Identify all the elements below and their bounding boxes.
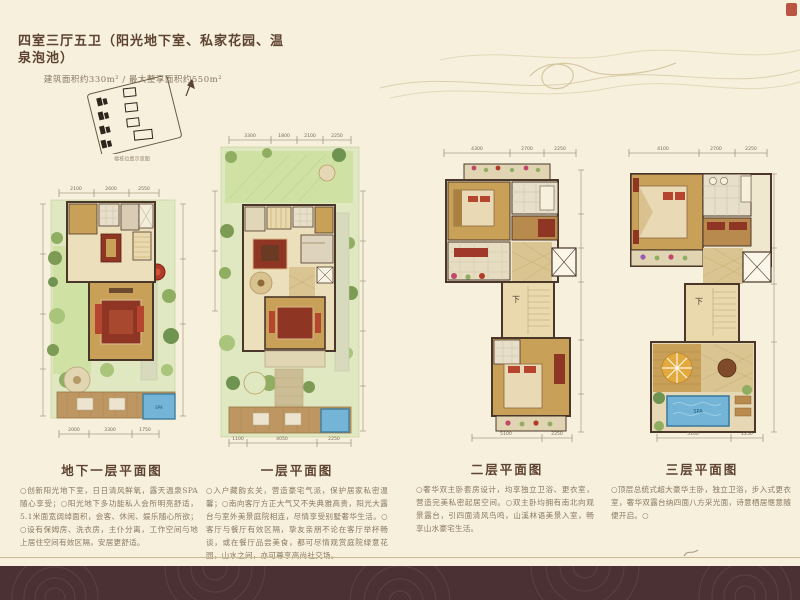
- svg-text:4100: 4100: [657, 146, 669, 152]
- maid-room: [69, 204, 97, 234]
- stairs: [267, 207, 291, 229]
- svg-text:5100: 5100: [500, 431, 512, 437]
- siteplan-figure: [74, 76, 204, 154]
- bathroom: [293, 207, 313, 227]
- plan-second-floor-figure: 4300 2700 2250: [438, 144, 584, 444]
- plan-desc-second: ○奢华双主卧套房设计，均享独立卫浴、更衣室，营造完美私密起居空间。○双主卧均拥有…: [416, 483, 594, 535]
- garden-motif: [319, 165, 335, 181]
- spa-pool-label: SPA: [693, 409, 703, 415]
- laundry-room: [121, 204, 139, 230]
- plan-title-first: 一层平面图: [207, 460, 387, 479]
- svg-text:2250: 2250: [745, 146, 757, 152]
- bathroom-south: [494, 340, 520, 364]
- footer-flourish-icon: [682, 547, 700, 559]
- svg-text:4300: 4300: [471, 146, 483, 152]
- footer-divider-line: [0, 557, 800, 558]
- building-footprints-solid: [90, 96, 118, 148]
- dresser: [554, 354, 565, 384]
- plan-first-floor-figure: 3300 1800 2100 2250: [209, 131, 371, 449]
- corner-logo-mark: [786, 3, 797, 16]
- dining-table: [261, 245, 279, 261]
- bathtub: [540, 186, 554, 210]
- siteplan: 楼栋位置示意图: [74, 76, 204, 172]
- stairs: [133, 232, 151, 260]
- stairs: [685, 284, 739, 342]
- svg-text:1100: 1100: [232, 436, 244, 442]
- contour-waves-decoration: [380, 30, 800, 108]
- garden-feature: [244, 372, 266, 394]
- plan-title-second: 二层平面图: [418, 459, 596, 478]
- plan-basement-figure: 2100 2600 2550: [37, 184, 187, 442]
- plan-title-basement: 地下一层平面图: [29, 460, 195, 479]
- svg-text:2100: 2100: [70, 186, 82, 192]
- plan-desc-third: ○顶层总统式超大豪华主卧，独立卫浴，步入式更衣室，奢华双露台纳四面八方采光面，诗…: [611, 483, 791, 522]
- plan-desc-basement: ○创新阳光地下室，日日清风鲜氧，露天温泉SPA随心享受；○阳光地下多功能私人会所…: [20, 484, 198, 549]
- plan-first-floor: 3300 1800 2100 2250: [209, 131, 371, 453]
- entry-foyer: [245, 207, 265, 231]
- siteplan-caption: 楼栋位置示意图: [83, 155, 182, 163]
- svg-text:3300: 3300: [104, 427, 116, 433]
- north-arrow-icon: [186, 80, 194, 96]
- page-title: 四室三厅五卫（阳光地下室、私家花园、温泉泡池）: [18, 34, 288, 68]
- svg-text:2100: 2100: [304, 133, 316, 139]
- svg-text:SPA: SPA: [155, 405, 163, 410]
- bathroom: [99, 204, 119, 226]
- svg-text:1750: 1750: [139, 427, 151, 433]
- svg-text:2600: 2600: [105, 186, 117, 192]
- kitchen: [301, 235, 333, 263]
- sofa: [95, 304, 102, 334]
- pool: [321, 409, 349, 432]
- sofa: [269, 311, 275, 333]
- tv-cabinet: [109, 288, 133, 293]
- palm-plant: [653, 392, 665, 404]
- south-terrace: [265, 351, 325, 367]
- bathtub: [741, 176, 751, 202]
- sitting-terrace: [448, 242, 510, 280]
- study-room: [315, 207, 333, 233]
- svg-text:2000: 2000: [68, 427, 80, 433]
- svg-text:2250: 2250: [741, 431, 753, 437]
- plan-second-floor: 4300 2700 2250: [438, 144, 584, 448]
- lounge-chair: [77, 398, 93, 410]
- svg-text:2250: 2250: [328, 436, 340, 442]
- living-carpet: [277, 307, 313, 339]
- svg-text:4050: 4050: [276, 436, 288, 442]
- garden-path: [335, 213, 349, 371]
- svg-text:3300: 3300: [244, 133, 256, 139]
- plan-desc-first: ○入户藏韵玄关，营造豪宅气派，保护居家私密温馨；○南向客厅方正大气又不失典雅高贵…: [206, 484, 388, 562]
- lounge-chair: [253, 413, 269, 425]
- svg-text:1800: 1800: [278, 133, 290, 139]
- stair-down-label: 下: [512, 295, 520, 304]
- svg-text:2700: 2700: [521, 146, 533, 152]
- plan-basement: 2100 2600 2550: [37, 184, 187, 446]
- building-footprints-outline: [118, 85, 154, 144]
- garden-steps: [275, 369, 303, 413]
- round-table: [718, 359, 736, 377]
- plan-third-floor-figure: 4100 2700 2250: [623, 144, 778, 444]
- plan-third-floor: 4100 2700 2250: [623, 144, 778, 448]
- stair-down-label: 下: [695, 297, 703, 306]
- footer-swirl-band: [0, 566, 800, 600]
- svg-text:2700: 2700: [710, 146, 722, 152]
- lounger: [735, 396, 751, 404]
- svg-text:2250: 2250: [551, 431, 563, 437]
- sofa: [454, 248, 488, 257]
- svg-text:2250: 2250: [554, 146, 566, 152]
- svg-text:2550: 2550: [138, 186, 150, 192]
- svg-text:2250: 2250: [331, 133, 343, 139]
- svg-text:5100: 5100: [687, 431, 699, 437]
- sink: [709, 177, 716, 184]
- brochure-page: 四室三厅五卫（阳光地下室、私家花园、温泉泡池） 建筑面积约330m² / 最大整…: [0, 0, 800, 600]
- plan-title-third: 三层平面图: [613, 459, 791, 478]
